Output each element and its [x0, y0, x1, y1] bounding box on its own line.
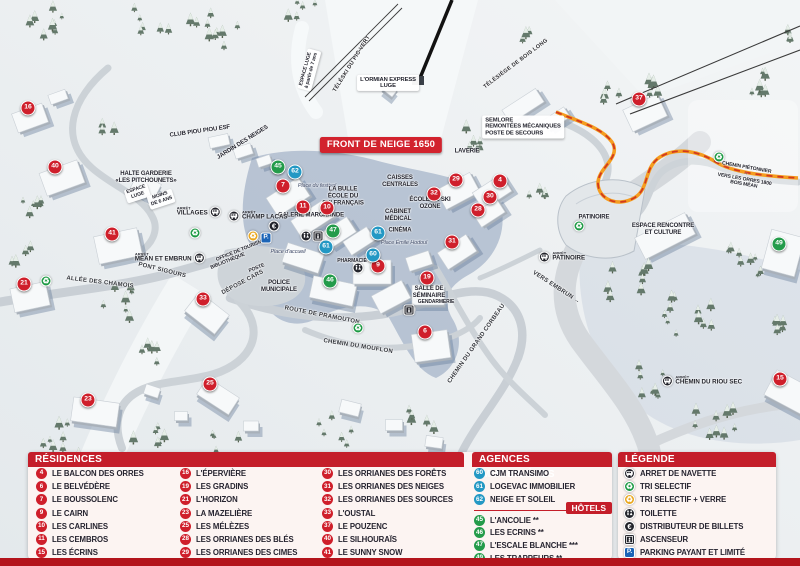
legend-item: 6LE BELVÉDÈRE	[36, 480, 178, 493]
legend-marker-number: 31	[322, 481, 333, 492]
legend-marker-number: 10	[36, 521, 47, 532]
euro-icon: €	[624, 521, 635, 532]
map-marker-30: 30	[483, 190, 498, 205]
recycle-green-icon: ♻	[624, 481, 635, 492]
bus-stop-chemin-du-riou-sec: ARRÊTCHEMIN DU RIOU SEC	[662, 376, 742, 387]
legend-item-label: TOILETTE	[640, 509, 677, 518]
legend-marker-number: 23	[180, 508, 191, 519]
legend-item: 31LES ORRIANES DES NEIGES	[322, 480, 468, 493]
legend-header-agences: AGENCES IMMOBILIÈRES	[472, 452, 612, 467]
legend-item-label: LES ORRIANES DES SOURCES	[338, 495, 453, 504]
legend-panel-right: LÉGENDE ARRET DE NAVETTE♻TRI SELECTIF♻TR…	[618, 452, 776, 560]
bus-stop-champ-lacas: ARRÊTCHAMP LACAS	[228, 211, 287, 222]
legend-panel-left: RÉSIDENCES AGENCES IMMOBILIÈRES 4LE BALC…	[28, 452, 612, 560]
legend-marker-number: 25	[180, 521, 191, 532]
legend-item: 7LE BOUSSOLENC	[36, 493, 178, 506]
legend-item-label: TRI SELECTIF	[640, 482, 691, 491]
legend-marker-number: 16	[180, 468, 191, 479]
elevator-icon	[313, 231, 324, 242]
recycle-green-icon: ♻	[41, 276, 52, 287]
legend-item-label: LES ECRINS **	[490, 528, 544, 537]
legend-item: 9LE CAIRN	[36, 507, 178, 520]
recycle-green-icon: ♻	[574, 221, 585, 232]
legend-item-label: TRI SELECTIF + VERRE	[640, 495, 726, 504]
legend-item-label: NEIGE ET SOLEIL	[490, 495, 555, 504]
recycle-yellow-icon: ♻	[248, 231, 259, 242]
legend-marker-number: 29	[180, 547, 191, 558]
legende-column: ARRET DE NAVETTE♻TRI SELECTIF♻TRI SELECT…	[624, 467, 772, 559]
legend-item: 37LE POUZENC	[322, 520, 468, 533]
map-marker-49: 49	[772, 237, 787, 252]
legend-item-label: L'OUSTAL	[338, 509, 375, 518]
legend-marker-number: 6	[36, 481, 47, 492]
legend-item-label: LOGEVAC IMMOBILIER	[490, 482, 575, 491]
parking-icon: P.	[624, 547, 635, 558]
bus-stop-m-an-et-embrun: ARRÊTMÉAN ET EMBRUN	[135, 253, 205, 264]
legend-marker-number: 41	[322, 547, 333, 558]
map-marker-46: 46	[323, 274, 338, 289]
legend-item: 16L'ÉPERVIÈRE	[180, 467, 320, 480]
legend-item: 30LES ORRIANES DES FORÊTS	[322, 467, 468, 480]
wc-icon	[353, 263, 364, 274]
bottom-red-strip	[0, 558, 800, 566]
legend-item: 25LES MÉLÈZES	[180, 520, 320, 533]
legend-item-label: LES ORRIANES DES BLÉS	[196, 535, 294, 544]
legend-item: TOILETTE	[624, 507, 772, 520]
legend-item-label: LES ORRIANES DES FORÊTS	[338, 469, 446, 478]
legend-item: €DISTRIBUTEUR DE BILLETS	[624, 520, 772, 533]
legend-marker-number: 15	[36, 547, 47, 558]
legend-item-label: PARKING PAYANT ET LIMITÉ	[640, 548, 745, 557]
legend-marker-number: 11	[36, 534, 47, 545]
legend-item-label: LES CARLINES	[52, 522, 108, 531]
legend-item: 28LES ORRIANES DES BLÉS	[180, 533, 320, 546]
hotels-divider: HÔTELS	[474, 510, 612, 511]
legend-item-label: LE BELVÉDÈRE	[52, 482, 110, 491]
legend-item-label: LE SUNNY SNOW	[338, 548, 402, 557]
parking-icon: P.	[261, 233, 272, 244]
legend-item-label: LE CAIRN	[52, 509, 88, 518]
elevator-icon	[404, 305, 415, 316]
legend-item: 21L'HORIZON	[180, 493, 320, 506]
bus-icon	[194, 253, 205, 264]
map-marker-37: 37	[632, 92, 647, 107]
recycle-yellow-icon: ♻	[624, 494, 635, 505]
elevator-icon	[624, 534, 635, 545]
bus-icon	[228, 211, 239, 222]
legend-item-label: ASCENSEUR	[640, 535, 688, 544]
legend-marker-number: 30	[322, 468, 333, 479]
legend-item: 40LE SILHOURAÏS	[322, 533, 468, 546]
bus-stop-name: MÉAN ET EMBRUN	[135, 257, 192, 264]
bus-stop-name: CHAMP LACAS	[242, 215, 288, 222]
map-marker-6: 6	[418, 325, 433, 340]
legend-item-label: LES GRADINS	[196, 482, 248, 491]
legend-item-label: LA MAZELIÈRE	[196, 509, 252, 518]
legend-item: 46LES ECRINS **	[474, 527, 612, 540]
legend-marker-number: 47	[474, 540, 485, 551]
legend-marker-number: 9	[36, 508, 47, 519]
bus-icon	[624, 468, 635, 479]
legend-marker-number: 33	[322, 508, 333, 519]
legend-marker-number: 40	[322, 534, 333, 545]
legend-item-label: LE BOUSSOLENC	[52, 495, 118, 504]
legend-item-label: LE POUZENC	[338, 522, 387, 531]
map-marker-62: 62	[288, 165, 303, 180]
legend-header-legende: LÉGENDE	[618, 452, 776, 467]
residences-column-3: 30LES ORRIANES DES FORÊTS31LES ORRIANES …	[322, 467, 468, 559]
legend-item-label: CJM TRANSIMO	[490, 469, 549, 478]
legend-marker-number: 61	[474, 481, 485, 492]
map-marker-31: 31	[445, 235, 460, 250]
legend-marker-number: 28	[180, 534, 191, 545]
legend-marker-number: 21	[180, 494, 191, 505]
legend-item-label: LE BALCON DES ORRES	[52, 469, 144, 478]
legend-item: 32LES ORRIANES DES SOURCES	[322, 493, 468, 506]
legend-item: 61LOGEVAC IMMOBILIER	[474, 480, 612, 493]
legend-item: 10LES CARLINES	[36, 520, 178, 533]
legend-item: 47L'ESCALE BLANCHE ***	[474, 539, 612, 552]
legend-marker-number: 4	[36, 468, 47, 479]
agences-column: 60CJM TRANSIMO61LOGEVAC IMMOBILIER62NEIG…	[474, 467, 612, 507]
legend-item-label: L'ESCALE BLANCHE ***	[490, 541, 578, 550]
legend-marker-number: 62	[474, 494, 485, 505]
legend-item: 45L'ANCOLIE **	[474, 514, 612, 527]
recycle-green-icon: ♻	[353, 323, 364, 334]
legend-item-label: L'ANCOLIE **	[490, 516, 539, 525]
legend-marker-number: 7	[36, 494, 47, 505]
map-marker-32: 32	[427, 187, 442, 202]
map-marker-19: 19	[420, 271, 435, 286]
legend-item-label: LES ORRIANES DES NEIGES	[338, 482, 444, 491]
legend-item-label: LES ORRIANES DES CIMES	[196, 548, 297, 557]
map-marker-40: 40	[48, 160, 63, 175]
bus-stop-name: VILLAGES	[177, 211, 208, 218]
map-marker-61: 61	[371, 226, 386, 241]
legend-item: 11LES CEMBROS	[36, 533, 178, 546]
map-marker-23: 23	[81, 393, 96, 408]
map-marker-47: 47	[326, 224, 341, 239]
bus-stop-name: CHEMIN DU RIOU SEC	[675, 380, 742, 387]
residences-column-1: 4LE BALCON DES ORRES6LE BELVÉDÈRE7LE BOU…	[36, 467, 178, 559]
bus-icon	[662, 376, 673, 387]
recycle-green-icon: ♻	[190, 228, 201, 239]
legend-marker-number: 37	[322, 521, 333, 532]
legend-item: 23LA MAZELIÈRE	[180, 507, 320, 520]
map-marker-60: 60	[366, 248, 381, 263]
map-marker-10: 10	[320, 201, 335, 216]
legend-item: 4LE BALCON DES ORRES	[36, 467, 178, 480]
legend-marker-number: 19	[180, 481, 191, 492]
legend-item: ♻TRI SELECTIF	[624, 480, 772, 493]
map-marker-41: 41	[105, 227, 120, 242]
legend-item-label: ARRET DE NAVETTE	[640, 469, 716, 478]
legend-marker-number: 45	[474, 515, 485, 526]
wc-icon	[624, 508, 635, 519]
bus-icon	[210, 207, 221, 218]
bus-stop-villages: ARRÊTVILLAGES	[177, 207, 221, 218]
legend-header-hotels: HÔTELS	[566, 502, 612, 514]
map-marker-61: 61	[319, 240, 334, 255]
map-marker-11: 11	[296, 200, 311, 215]
hotels-column: 45L'ANCOLIE **46LES ECRINS **47L'ESCALE …	[474, 514, 612, 564]
legend-item-label: LE SILHOURAÏS	[338, 535, 397, 544]
map-marker-4: 4	[493, 174, 508, 189]
legend-item: ♻TRI SELECTIF + VERRE	[624, 493, 772, 506]
legend-marker-number: 32	[322, 494, 333, 505]
bus-stop-name: PATINOIRE	[552, 256, 585, 263]
legend-item-label: LES MÉLÈZES	[196, 522, 249, 531]
map-marker-7: 7	[276, 179, 291, 194]
map-marker-16: 16	[21, 101, 36, 116]
bus-icon	[539, 252, 550, 263]
map-marker-29: 29	[449, 173, 464, 188]
map-marker-15: 15	[773, 372, 788, 387]
legend-item-label: L'HORIZON	[196, 495, 238, 504]
legend-header-residences: RÉSIDENCES	[28, 452, 464, 467]
residences-column-2: 16L'ÉPERVIÈRE19LES GRADINS21L'HORIZON23L…	[180, 467, 320, 559]
legend-item: 19LES GRADINS	[180, 480, 320, 493]
map-marker-33: 33	[196, 292, 211, 307]
map-marker-28: 28	[471, 203, 486, 218]
legend-item-label: LES ÉCRINS	[52, 548, 98, 557]
map-marker-25: 25	[203, 377, 218, 392]
map-marker-45: 45	[271, 160, 286, 175]
map-marker-21: 21	[17, 277, 32, 292]
euro-icon: €	[269, 221, 280, 232]
legend-item-label: L'ÉPERVIÈRE	[196, 469, 246, 478]
legend-marker-number: 46	[474, 527, 485, 538]
wc-icon	[301, 231, 312, 242]
legend-item: 60CJM TRANSIMO	[474, 467, 612, 480]
legend-item-label: DISTRIBUTEUR DE BILLETS	[640, 522, 743, 531]
recycle-green-icon: ♻	[714, 152, 725, 163]
bus-stop-patinoire: ARRÊTPATINOIRE	[539, 252, 585, 263]
legend-item: ASCENSEUR	[624, 533, 772, 546]
legend-marker-number: 60	[474, 468, 485, 479]
legend-item: 33L'OUSTAL	[322, 507, 468, 520]
legend-item-label: LES CEMBROS	[52, 535, 108, 544]
legend-item: ARRET DE NAVETTE	[624, 467, 772, 480]
